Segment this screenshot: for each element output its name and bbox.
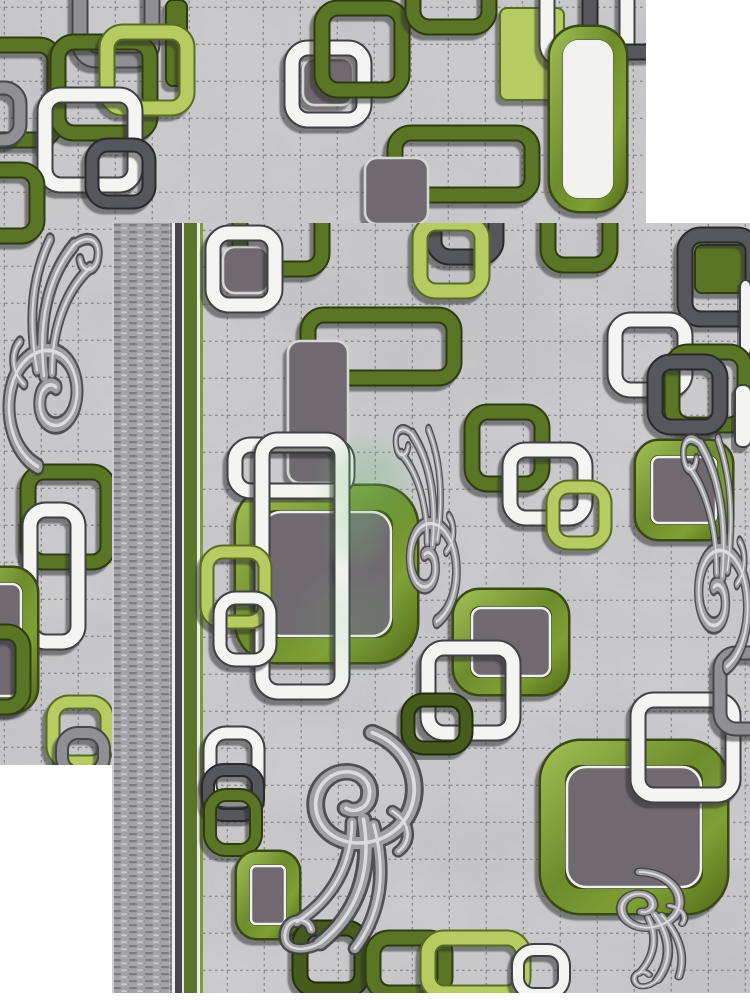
border-stripe: [184, 223, 197, 993]
border-stripe: [172, 223, 175, 993]
carpet-bottom-right-graphic: [112, 223, 750, 993]
carpet-photo-bottom-right: [112, 223, 750, 993]
bar-block: [735, 385, 750, 447]
fill-block: [365, 158, 428, 224]
fill-block: [223, 247, 269, 293]
selvage-band: [112, 223, 203, 993]
speck-block: [556, 33, 620, 205]
border-stripe: [175, 223, 182, 993]
carpet-collage: [0, 0, 750, 1000]
border-stripe: [182, 223, 184, 993]
bar-block: [740, 280, 750, 356]
border-stripe: [197, 223, 200, 993]
